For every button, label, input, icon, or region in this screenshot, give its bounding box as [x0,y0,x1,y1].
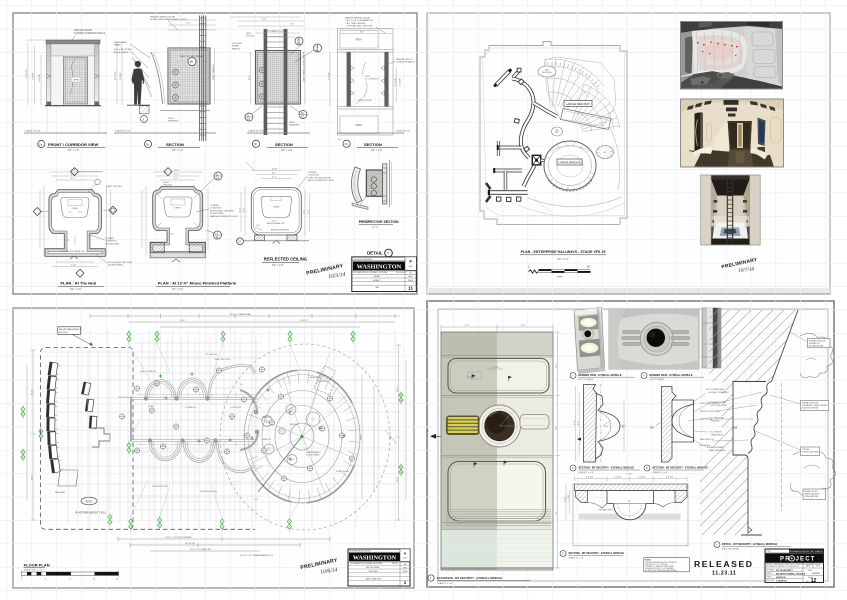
svg-text:3: 3 [159,525,160,527]
svg-text:PERSPECTIVE SECTION: PERSPECTIVE SECTION [359,220,399,224]
svg-text:VINYL: VINYL [289,122,296,124]
svg-text:6'-10": 6'-10" [574,420,576,425]
svg-text:1'-9 1/4": 1'-9 1/4" [614,477,622,479]
svg-text:C: C [562,553,564,556]
svg-text:9: 9 [352,339,353,341]
svg-text:FLR PLAN: FLR PLAN [369,570,378,573]
svg-text:+ 12'-0": + 12'-0" [270,221,277,223]
svg-text:9'-2": 9'-2" [239,207,241,212]
svg-text:5/4 POPLAR PROFILE: 5/4 POPLAR PROFILE [700,402,719,405]
svg-text:PAINTED METAL LEDGE: PAINTED METAL LEDGE [345,17,371,20]
svg-text:SET: SET [806,566,811,568]
svg-text:R 7/8" TYPICAL: R 7/8" TYPICAL [700,418,713,421]
svg-text:✽: ✽ [409,260,412,264]
svg-text:SAME AS CORRIDOR FLOOR: SAME AS CORRIDOR FLOOR [210,215,238,218]
svg-text:OPEN: OPEN [73,80,79,82]
svg-text:SAND SMOOTH: SAND SMOOTH [700,438,714,441]
svg-text:4'-0": 4'-0" [578,421,580,425]
svg-text:5'-10": 5'-10" [71,264,77,266]
svg-text:LIGHT TROUGH CEILING: LIGHT TROUGH CEILING [308,177,332,179]
svg-text:WRAPPED: WRAPPED [168,120,179,123]
svg-text:OPEN: OPEN [365,76,371,78]
svg-text:7: 7 [289,526,290,528]
svg-text:BRIDGE WALL CARCASS: BRIDGE WALL CARCASS [210,209,234,212]
svg-text:3/4" PLY SUBSTRATE: 3/4" PLY SUBSTRATE [706,388,725,391]
svg-text:SECTION: SECTION [275,142,293,147]
svg-text:CONDITION: CONDITION [210,208,222,210]
svg-text:PANELS: PANELS [232,47,241,50]
svg-text:STAGE FLOOR: STAGE FLOOR [248,130,264,133]
svg-text:SHEET: SHEET [408,276,413,278]
svg-text:SM: SM [376,287,379,289]
svg-text:FEET: FEET [557,277,563,279]
svg-text:28'-4": 28'-4" [397,386,399,392]
svg-text:5/4 x 4 BLOCKING: 5/4 x 4 BLOCKING [114,49,132,51]
svg-text:TRANSPARENT: TRANSPARENT [306,451,322,454]
svg-text:EQ: EQ [255,499,258,501]
svg-text:8: 8 [70,579,71,581]
svg-text:VINYL: VINYL [168,118,175,120]
svg-text:3'-6": 3'-6" [262,19,267,21]
svg-text:ELEVATION - MT SECURITY - EYEB: ELEVATION - MT SECURITY - EYEBALL MODULE [437,576,503,580]
svg-text:FLOOR PANEL: FLOOR PANEL [306,454,321,457]
svg-text:818-954: 818-954 [392,563,398,565]
svg-text:2'-0": 2'-0" [272,31,276,33]
svg-text:SCALE 3" = 1'-0": SCALE 3" = 1'-0" [653,471,668,474]
svg-text:7: 7 [289,334,290,336]
svg-text:2'-2": 2'-2" [622,424,624,428]
svg-text:SHEET: SHEET [403,567,408,569]
svg-text:12: 12 [811,578,817,584]
svg-text:CORNER: CORNER [210,205,219,207]
svg-text:35'-2 1/2": 35'-2 1/2" [300,320,309,322]
svg-text:7'-5": 7'-5" [556,511,558,515]
svg-text:AS DESCRIBED: AS DESCRIBED [108,264,123,267]
svg-text:WASHINGTON: WASHINGTON [357,263,402,270]
svg-text:OPEN: OPEN [355,39,362,42]
svg-text:WRAPPED: WRAPPED [289,124,300,127]
svg-text:2: 2 [130,521,131,523]
svg-text:DETAIL: DETAIL [367,251,383,256]
svg-text:PLATFORM EDGE: PLATFORM EDGE [200,490,218,493]
svg-text:34'-6" ± TO PROSCENIUM: 34'-6" ± TO PROSCENIUM [165,537,192,539]
svg-text:18'-4" ± TO WALL R-T: 18'-4" ± TO WALL R-T [190,548,212,551]
svg-text:7: 7 [289,521,290,523]
svg-text:DETAIL - MT SECURITY - EYEBALL: DETAIL - MT SECURITY - EYEBALL MODULE [722,542,778,546]
svg-text:2: 2 [128,339,129,341]
svg-text:8'-1": 8'-1" [243,207,245,212]
svg-text:11.23.11: 11.23.11 [712,571,736,577]
svg-text:NOT TO SCALE: NOT TO SCALE [579,378,594,381]
svg-text:3/4" = 1'-0": 3/4" = 1'-0" [70,289,81,291]
svg-text:CORRIDOR: CORRIDOR [230,407,241,409]
svg-text:40'-11" ± TO TRANSPARENCY LT: 40'-11" ± TO TRANSPARENCY LT [240,554,274,557]
svg-text:SPRAY APPLIED: SPRAY APPLIED [805,495,820,498]
svg-text:LARGE MED BAY: LARGE MED BAY [566,102,590,106]
svg-text:SECTION - MT SECURITY - EYEBAL: SECTION - MT SECURITY - EYEBALL MODULE [569,552,625,555]
svg-text:PLATFORM LINE: PLATFORM LINE [152,485,168,488]
svg-text:RENDER VIEW - EYEBALL MODULE: RENDER VIEW - EYEBALL MODULE [579,374,622,377]
svg-text:16: 16 [93,579,95,581]
svg-text:WARM WHITE: WARM WHITE [711,434,724,437]
svg-text:4: 4 [45,579,46,581]
svg-text:5: 5 [222,339,223,341]
svg-text:8'-10": 8'-10" [272,168,278,170]
svg-text:23'-2": 23'-2" [31,474,33,480]
svg-text:WASHINGTON: WASHINGTON [353,554,397,561]
svg-text:HIGH BACK: HIGH BACK [310,376,322,379]
svg-text:EQ: EQ [240,384,243,386]
svg-text:4'-2": 4'-2" [556,364,558,368]
svg-text:7: 7 [289,339,290,341]
svg-text:LIGHT PANELS: LIGHT PANELS [212,64,215,80]
svg-text:OPEN: OPEN [148,406,154,408]
svg-text:3: 3 [159,520,160,522]
svg-text:(PLATFORM HEIGHT T.B.D.): (PLATFORM HEIGHT T.B.D.) [75,512,106,515]
svg-text:7d: 7d [344,142,348,146]
svg-text:2: 2 [128,450,129,452]
svg-text:7'-10": 7'-10" [626,474,631,476]
svg-text:1'-9 1/4": 1'-9 1/4" [638,477,646,479]
svg-text:CORRIDOR: CORRIDOR [185,407,196,409]
svg-text:OPEN: OPEN [355,124,362,127]
svg-text:9: 9 [352,334,353,336]
svg-text:TYPICAL 8-0: TYPICAL 8-0 [205,353,218,356]
svg-text:SIM ON CORRIDOR FLOOR: SIM ON CORRIDOR FLOOR [308,180,335,182]
svg-text:3/4" = 1'-0": 3/4" = 1'-0" [172,289,183,291]
svg-text:STAGE 32: STAGE 32 [776,576,786,579]
svg-text:TYPICAL LIGHT: TYPICAL LIGHT [598,509,613,512]
svg-text:VEST: VEST [555,132,559,134]
svg-text:SECTION - MT SECURITY - EYEBAL: SECTION - MT SECURITY - EYEBALL MODULE [579,467,635,470]
svg-text:UP TROUGH LIGHT PLAN: UP TROUGH LIGHT PLAN [108,261,133,264]
svg-text:CONDITION: CONDITION [105,241,117,243]
svg-text:5: 5 [222,334,223,336]
svg-text:FLOOR PLAN: FLOOR PLAN [24,563,50,568]
svg-text:R 11": R 11" [604,426,609,428]
svg-text:RAMP UP: RAMP UP [262,416,272,419]
svg-text:24: 24 [116,579,118,581]
svg-text:4'-7": 4'-7" [272,176,277,178]
svg-text:LIGHT PANELS ON INTERIOR: LIGHT PANELS ON INTERIOR [303,51,306,82]
svg-text:2: 2 [128,334,129,336]
svg-text:W/ PROP DEPT BEFORE FINAL INST: W/ PROP DEPT BEFORE FINAL INSTALL [645,569,677,572]
svg-text:GRID: GRID [246,33,252,35]
svg-text:ROUTED COVE DETAIL: ROUTED COVE DETAIL [700,410,720,413]
svg-text:2'-4 3/4": 2'-4 3/4" [586,477,594,479]
svg-text:LIGHT TROUGH: LIGHT TROUGH [106,186,122,188]
svg-text:PAINTED GROUT: PAINTED GROUT [396,58,414,61]
svg-text:1'-1 1/2": 1'-1 1/2" [568,494,570,502]
svg-text:FINISH: FINISH [232,46,239,48]
svg-text:6'-8 3/4": 6'-8 3/4" [39,74,41,82]
svg-text:LINE OF SOFFIT: LINE OF SOFFIT [118,397,134,399]
svg-text:HALLWAY: HALLWAY [55,491,66,494]
svg-text:7: 7 [387,251,389,255]
svg-text:AT CENTERLINE: AT CENTERLINE [809,344,824,347]
svg-text:DESIGNER: DESIGNER [766,580,775,582]
svg-text:JECT: JECT [796,557,816,563]
svg-text:3'-9": 3'-9" [465,325,469,327]
svg-text:3/4" = 1'-0": 3/4" = 1'-0" [172,150,183,152]
svg-text:4'-2": 4'-2" [338,139,342,141]
svg-text:ABOVE STAGE FLR: ABOVE STAGE FLR [267,222,285,225]
svg-text:WALL SECTION: WALL SECTION [215,358,230,361]
svg-text:SECURITY EYEBALL MODULE: SECURITY EYEBALL MODULE [776,572,806,575]
svg-text:PLAN - ENTERPRISE HALLWAYS: PLAN - ENTERPRISE HALLWAYS - STAGE VFS J… [521,250,606,254]
svg-text:1/8" = 1'-0": 1/8" = 1'-0" [557,258,569,261]
svg-text:ABOVE OPENS PLR: ABOVE OPENS PLR [271,229,289,232]
svg-text:NOT TO SCALE: NOT TO SCALE [650,378,665,381]
svg-text:CORRIDOR WALLS: CORRIDOR WALLS [396,61,415,64]
svg-text:ENTERPRISE BRIDGE SET: ENTERPRISE BRIDGE SET [349,551,370,553]
svg-text:5'-0": 5'-0" [186,23,191,25]
svg-text:PAINTED METAL LEDGE: PAINTED METAL LEDGE [150,16,176,19]
svg-text:SCALE 3" = 1'-0": SCALE 3" = 1'-0" [579,471,594,474]
svg-text:N.T.S.: N.T.S. [372,227,378,229]
svg-text:45'-0": 45'-0" [86,499,93,503]
svg-text:+ TYPICAL WALL SIM LINE: + TYPICAL WALL SIM LINE [345,25,373,28]
svg-text:BRIDGE: BRIDGE [290,424,298,426]
svg-text:FRONT / CORRIDOR VIEW: FRONT / CORRIDOR VIEW [48,142,98,147]
svg-text:RENDER VIEW - EYEBALL MODULE: RENDER VIEW - EYEBALL MODULE [650,374,693,377]
svg-text:ALL EDGES: ALL EDGES [700,444,711,447]
svg-text:PLAN : At 12'-0" Above Finis: PLAN : At 12'-0" Above Finished Platform [158,281,237,286]
svg-text:SCALE AS SHOWN: SCALE AS SHOWN [802,406,819,409]
svg-text:SCALE 3" = 1'-0": SCALE 3" = 1'-0" [437,582,453,585]
svg-text:STAGE FLOOR: STAGE FLOOR [115,130,131,133]
svg-text:WALL TEC GRID PANELS: WALL TEC GRID PANELS [180,55,204,58]
svg-text:28'-0": 28'-0" [360,434,362,440]
svg-text:2'-0 1/2": 2'-0 1/2" [492,367,500,369]
svg-text:818-954-6000: 818-954-6000 [396,272,406,274]
svg-text:7'-6 1/4": 7'-6 1/4" [120,72,122,80]
svg-text:MR 1614 LEVEL: MR 1614 LEVEL [366,567,379,569]
svg-text:3/4" = 1'-0": 3/4" = 1'-0" [371,150,382,152]
svg-text:5/8: 5/8 [734,426,738,430]
svg-text:+ AC 11 x 8' COMBINATION: + AC 11 x 8' COMBINATION [345,19,373,22]
svg-text:21'-6": 21'-6" [31,389,33,395]
svg-text:STEP LIGHTS: STEP LIGHTS [336,471,350,473]
svg-text:STAGE FLOOR: STAGE FLOOR [25,130,41,133]
svg-text:PLAN : At The Hub: PLAN : At The Hub [60,281,96,286]
svg-text:+ 1'-6" ABOVE STAGE FLR: + 1'-6" ABOVE STAGE FLR [60,250,85,253]
svg-text:7c: 7c [254,142,258,146]
svg-text:7'-6 1/8": 7'-6 1/8" [395,78,397,86]
svg-text:1'-6": 1'-6" [256,225,260,227]
svg-text:11.23.11: 11.23.11 [812,573,820,575]
svg-text:OPEN: OPEN [273,207,280,209]
svg-text:10'-0": 10'-0" [174,170,180,172]
svg-text:5: 5 [222,521,223,523]
svg-text:PAINTED FINISH: PAINTED FINISH [74,29,92,32]
svg-text:OPEN: OPEN [175,208,182,210]
svg-text:3'-6": 3'-6" [303,209,305,214]
svg-text:10'-5 1/2": 10'-5 1/2" [115,71,117,80]
svg-text:REMOVABLE: REMOVABLE [114,41,127,44]
svg-text:8'-0": 8'-0" [249,75,251,80]
svg-text:0: 0 [21,579,22,581]
svg-text:+ AC TRIM CENTER: + AC TRIM CENTER [345,22,366,25]
svg-text:8'-2": 8'-2" [360,32,364,34]
svg-text:60'-0" ± STAGE WALL: 60'-0" ± STAGE WALL [230,313,253,316]
svg-text:2'-3": 2'-3" [170,234,174,236]
svg-text:RELEASED: RELEASED [694,559,754,569]
svg-text:FULL SIZE DETAIL: FULL SIZE DETAIL [722,548,740,551]
svg-text:3'-6 1/8": 3'-6 1/8" [400,78,402,86]
svg-text:W/ SCENIC TREATMENT: W/ SCENIC TREATMENT [708,391,730,394]
svg-text:SCALE 3" = 1'-0": SCALE 3" = 1'-0" [569,556,584,559]
svg-text:PAINT FLAT BLACK: PAINT FLAT BLACK [709,449,726,452]
svg-text:7'-6 1/4": 7'-6 1/4" [328,72,330,80]
svg-text:REFLECTED CEILING: REFLECTED CEILING [264,257,307,262]
svg-text:3/4" = 1'-0": 3/4" = 1'-0" [272,265,283,267]
svg-text:10'-5 1/2": 10'-5 1/2" [26,69,28,78]
svg-text:4'-7": 4'-7" [174,178,179,180]
svg-text:CEILING: CEILING [246,36,255,38]
svg-text:T. MURPHY: T. MURPHY [776,580,787,582]
svg-text:FLUSH FINISH: FLUSH FINISH [210,213,224,215]
svg-text:5: 5 [222,526,223,528]
svg-text:7b: 7b [146,142,150,146]
svg-text:1'-8": 1'-8" [308,209,310,214]
svg-text:VESTIBULE: VESTIBULE [542,72,553,74]
svg-text:STAGE FLOOR: STAGE FLOOR [396,130,411,133]
svg-text:TO CORRIDOR: TO CORRIDOR [365,79,380,81]
svg-text:CORNER: CORNER [308,172,317,174]
svg-text:SUBJECT: SUBJECT [766,573,773,575]
svg-text:LIGHT LEDGE: LIGHT LEDGE [358,100,372,102]
svg-text:SECTION: SECTION [166,142,184,147]
svg-text:LINE OF FASCIA: LINE OF FASCIA [140,370,156,373]
svg-text:SEE WILLIAM DETAILS D: SEE WILLIAM DETAILS D [59,328,82,331]
svg-text:LARGE BRIDGE: LARGE BRIDGE [558,161,581,165]
svg-text:4'-7": 4'-7" [71,178,76,180]
svg-text:3: 3 [156,334,157,336]
svg-text:7a: 7a [39,142,43,146]
svg-text:SCENIC TRIM LINE: SCENIC TRIM LINE [802,452,819,454]
svg-text:SCALE: 1/4" = 1'-0": SCALE: 1/4" = 1'-0" [24,569,43,572]
svg-text:OPEN: OPEN [72,208,79,210]
svg-text:MT. 34 SECURITY: MT. 34 SECURITY [776,569,793,572]
svg-text:SET: SET [603,152,606,154]
svg-text:BRIDGE PLAN: BRIDGE PLAN [105,242,119,245]
svg-text:SET P102: SET P102 [59,332,68,334]
svg-text:AS REQUIRED: AS REQUIRED [114,51,129,54]
svg-text:PANELS: PANELS [114,44,123,47]
svg-text:2: 2 [128,445,129,447]
svg-text:3/4" = 1'-0": 3/4" = 1'-0" [281,150,292,152]
svg-text:CORNER: CORNER [105,238,114,240]
svg-text:6 1/2": 6 1/2" [564,497,566,502]
svg-text:5/8: 5/8 [650,426,654,430]
svg-text:24'-6": 24'-6" [180,320,186,322]
svg-text:L.E.D. RIBBON: L.E.D. RIBBON [709,432,722,434]
svg-text:1'-8": 1'-8" [290,24,295,26]
svg-text:4'-0": 4'-0" [556,426,558,430]
svg-text:MOUNTAINTOP SECURITY SET STAG: MOUNTAINTOP SECURITY SET STAGE 32 [789,550,822,553]
svg-text:LIGHT: LIGHT [163,182,170,184]
svg-text:LACQUER: LACQUER [232,42,243,45]
svg-text:26'-10 1/2": 26'-10 1/2" [185,543,196,545]
svg-text:SECTION: SECTION [364,142,382,147]
svg-text:SECTION - MT SECURITY - EYEBAL: SECTION - MT SECURITY - EYEBALL MODULE [653,467,709,470]
svg-text:11: 11 [408,286,413,291]
svg-text:3'-9": 3'-9" [521,325,525,327]
svg-text:DETAIL 7: DETAIL 7 [373,279,381,282]
svg-text:CONDITION: CONDITION [308,175,320,177]
svg-text:8'-1": 8'-1" [272,172,277,174]
svg-text:DAVID CHAN / SM: DAVID CHAN / SM [365,578,381,581]
svg-text:8'-4": 8'-4" [174,174,179,176]
svg-text:DETAIL: DETAIL [374,275,380,278]
svg-text:w/ LACQUER FINISH PANELS (TYP): w/ LACQUER FINISH PANELS (TYP) [150,18,187,21]
svg-text:TROUGH: TROUGH [163,185,172,187]
svg-text:CURVED CORRIDOR WALLS: CURVED CORRIDOR WALLS [74,32,106,35]
svg-text:7'-0 1/2": 7'-0 1/2" [33,72,35,80]
svg-text:THE HUB CORRIDOR: THE HUB CORRIDOR [353,259,373,261]
svg-text:26'-0": 26'-0" [397,476,399,482]
svg-text:2'-4 3/4": 2'-4 3/4" [666,477,674,479]
svg-text:CONSOLE: CONSOLE [318,381,328,383]
svg-text:RAMP DN: RAMP DN [262,438,272,441]
svg-text:3/4" = 1'-0": 3/4" = 1'-0" [68,150,79,152]
svg-text:3: 3 [156,339,157,341]
